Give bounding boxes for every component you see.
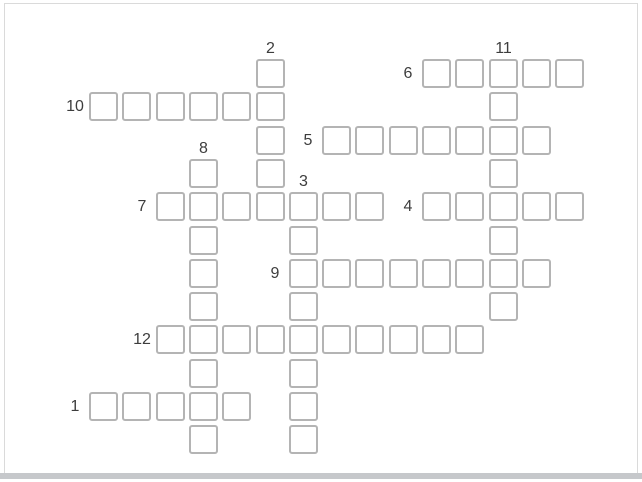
crossword-cell-12-10[interactable] <box>455 325 484 354</box>
crossword-cell-9-5[interactable] <box>422 259 451 288</box>
clue-number-12: 12 <box>128 332 156 348</box>
crossword-cell-6-4[interactable] <box>522 59 551 88</box>
crossword-cell-10-5[interactable] <box>222 92 251 121</box>
crossword-cell-6-2[interactable] <box>455 59 484 88</box>
crossword-cell-10-2[interactable] <box>122 92 151 121</box>
crossword-cell-10-1[interactable] <box>89 92 118 121</box>
crossword-cell-4-1[interactable] <box>422 192 451 221</box>
crossword-cell-7-7[interactable] <box>355 192 384 221</box>
clue-number-10: 10 <box>61 99 89 115</box>
crossword-cell-8-1[interactable] <box>189 159 218 188</box>
crossword-cell-12-6[interactable] <box>322 325 351 354</box>
crossword-cell-12-1[interactable] <box>156 325 185 354</box>
crossword-cell-5-1[interactable] <box>322 126 351 155</box>
clue-number-2: 2 <box>256 41 285 57</box>
crossword-grid: 123456789101112 <box>0 0 642 482</box>
crossword-cell-1-1[interactable] <box>89 392 118 421</box>
crossword-cell-4-5[interactable] <box>555 192 584 221</box>
crossword-cell-3-7[interactable] <box>289 392 318 421</box>
crossword-cell-5-5[interactable] <box>455 126 484 155</box>
bottom-bar <box>0 473 642 479</box>
crossword-cell-11-6[interactable] <box>489 226 518 255</box>
crossword-cell-5-4[interactable] <box>422 126 451 155</box>
crossword-cell-12-9[interactable] <box>422 325 451 354</box>
crossword-cell-5-3[interactable] <box>389 126 418 155</box>
crossword-cell-9-4[interactable] <box>389 259 418 288</box>
crossword-cell-8-3[interactable] <box>189 226 218 255</box>
crossword-cell-8-5[interactable] <box>189 292 218 321</box>
crossword-cell-3-1[interactable] <box>289 192 318 221</box>
crossword-cell-7-6[interactable] <box>322 192 351 221</box>
crossword-cell-7-1[interactable] <box>156 192 185 221</box>
crossword-cell-2-5[interactable] <box>256 192 285 221</box>
crossword-cell-2-1[interactable] <box>256 59 285 88</box>
clue-number-6: 6 <box>394 66 422 82</box>
crossword-cell-2-4[interactable] <box>256 159 285 188</box>
crossword-cell-9-8[interactable] <box>522 259 551 288</box>
crossword-cell-3-6[interactable] <box>289 359 318 388</box>
crossword-cell-2-3[interactable] <box>256 126 285 155</box>
crossword-cell-8-7[interactable] <box>189 359 218 388</box>
clue-number-7: 7 <box>128 199 156 215</box>
crossword-cell-9-3[interactable] <box>355 259 384 288</box>
crossword-cell-3-8[interactable] <box>289 425 318 454</box>
crossword-cell-5-6[interactable] <box>489 126 518 155</box>
crossword-cell-12-8[interactable] <box>389 325 418 354</box>
crossword-cell-3-4[interactable] <box>289 292 318 321</box>
crossword-cell-10-4[interactable] <box>189 92 218 121</box>
clue-number-8: 8 <box>189 141 218 157</box>
crossword-cell-8-9[interactable] <box>189 425 218 454</box>
clue-number-4: 4 <box>394 199 422 215</box>
crossword-cell-10-3[interactable] <box>156 92 185 121</box>
crossword-cell-12-3[interactable] <box>222 325 251 354</box>
crossword-cell-7-2[interactable] <box>189 192 218 221</box>
crossword-cell-7-3[interactable] <box>222 192 251 221</box>
crossword-cell-11-8[interactable] <box>489 292 518 321</box>
crossword-cell-4-4[interactable] <box>522 192 551 221</box>
crossword-cell-12-7[interactable] <box>355 325 384 354</box>
crossword-cell-5-2[interactable] <box>355 126 384 155</box>
crossword-cell-8-6[interactable] <box>189 325 218 354</box>
crossword-cell-5-7[interactable] <box>522 126 551 155</box>
clue-number-1: 1 <box>61 399 89 415</box>
crossword-cell-1-2[interactable] <box>122 392 151 421</box>
crossword-cell-3-5[interactable] <box>289 325 318 354</box>
crossword-cell-3-2[interactable] <box>289 226 318 255</box>
crossword-cell-4-2[interactable] <box>455 192 484 221</box>
crossword-cell-1-3[interactable] <box>156 392 185 421</box>
clue-number-11: 11 <box>489 41 518 57</box>
crossword-cell-6-5[interactable] <box>555 59 584 88</box>
clue-number-9: 9 <box>261 266 289 282</box>
crossword-cell-6-1[interactable] <box>422 59 451 88</box>
clue-number-3: 3 <box>289 174 318 190</box>
crossword-cell-11-2[interactable] <box>489 92 518 121</box>
crossword-cell-9-6[interactable] <box>455 259 484 288</box>
crossword-cell-11-4[interactable] <box>489 159 518 188</box>
crossword-cell-1-5[interactable] <box>222 392 251 421</box>
crossword-cell-4-3[interactable] <box>489 192 518 221</box>
crossword-cell-9-2[interactable] <box>322 259 351 288</box>
crossword-cell-1-4[interactable] <box>189 392 218 421</box>
crossword-cell-8-4[interactable] <box>189 259 218 288</box>
crossword-cell-3-3[interactable] <box>289 259 318 288</box>
crossword-cell-9-7[interactable] <box>489 259 518 288</box>
crossword-cell-12-4[interactable] <box>256 325 285 354</box>
clue-number-5: 5 <box>294 133 322 149</box>
crossword-cell-2-2[interactable] <box>256 92 285 121</box>
crossword-cell-6-3[interactable] <box>489 59 518 88</box>
